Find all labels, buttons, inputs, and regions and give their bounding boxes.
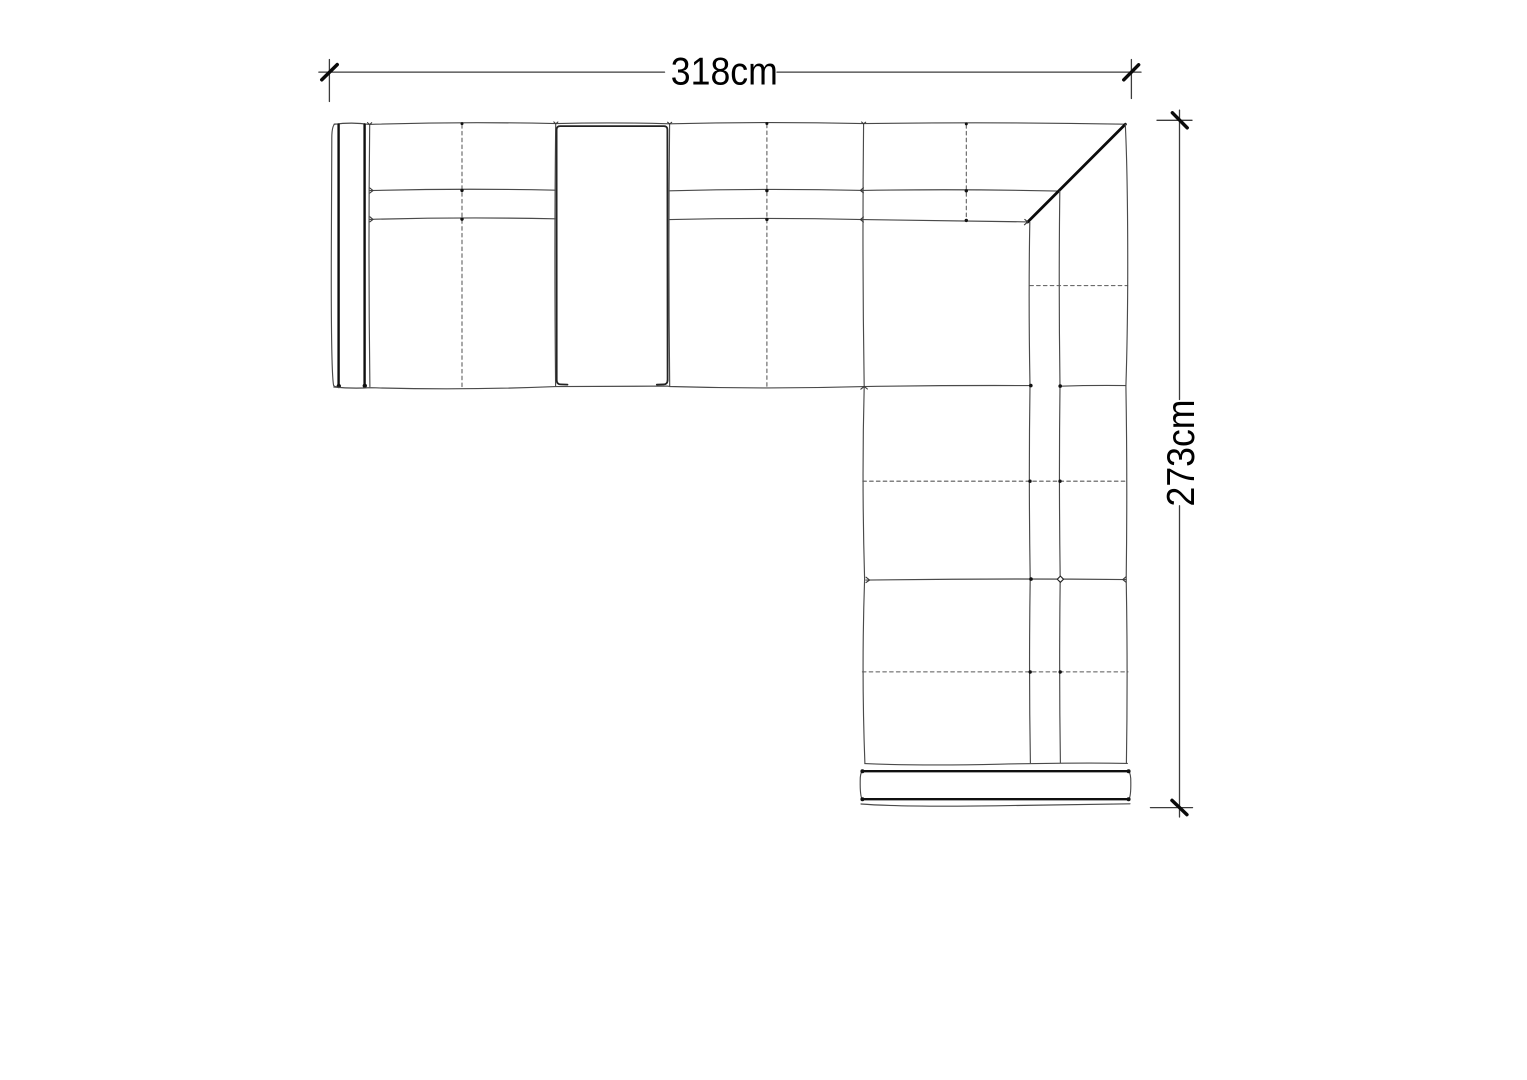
svg-text:318cm: 318cm: [671, 50, 778, 93]
svg-text:273cm: 273cm: [1160, 400, 1203, 507]
